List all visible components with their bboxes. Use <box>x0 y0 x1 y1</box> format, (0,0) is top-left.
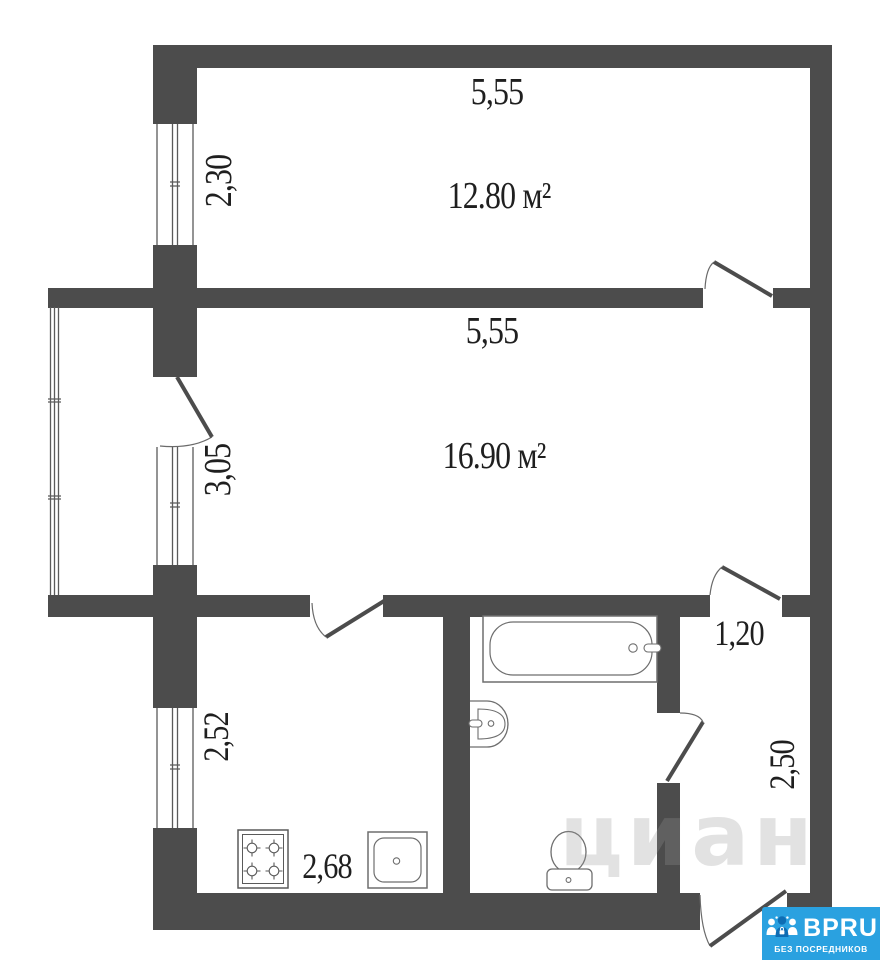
door-middle-room <box>710 567 780 599</box>
dim-top-room-width: 5,55 <box>471 70 524 114</box>
dim-kitchen-width: 2,68 <box>302 845 352 887</box>
bathtub-icon <box>483 616 661 682</box>
dim-top-room-depth: 2,30 <box>197 155 241 208</box>
washbasin-icon <box>469 701 508 747</box>
dim-middle-room-depth: 3,05 <box>196 444 240 497</box>
top-room-area-label: 12.80 м² <box>448 174 551 218</box>
stove-icon <box>238 830 288 888</box>
kitchen-sink-icon <box>368 832 427 888</box>
balcony-glazing-icon <box>48 307 61 595</box>
plan-overlay <box>0 0 880 960</box>
door-bathroom <box>667 713 703 781</box>
logo-brand-text: BPRU <box>803 916 878 941</box>
logo-tagline-text: БЕЗ ПОСРЕДНИКОВ <box>774 944 867 954</box>
dim-hallway-depth: 2,50 <box>761 740 803 790</box>
floor-plan: 5,55 12.80 м² 2,30 5,55 16.90 м² 3,05 2,… <box>0 0 880 960</box>
door-top-room <box>705 262 772 296</box>
people-lock-icon <box>764 914 800 942</box>
window-top-room-icon <box>157 124 193 245</box>
door-balcony <box>160 377 212 447</box>
middle-room-area-label: 16.90 м² <box>443 434 546 478</box>
dim-kitchen-depth: 2,52 <box>195 712 237 762</box>
bpru-logo: BPRU БЕЗ ПОСРЕДНИКОВ <box>762 907 880 960</box>
door-kitchen <box>312 601 384 637</box>
window-kitchen-icon <box>157 708 193 828</box>
window-middle-room-icon <box>157 447 193 565</box>
toilet-icon <box>547 832 592 891</box>
dim-middle-room-width: 5,55 <box>466 309 519 353</box>
dim-hallway-width: 1,20 <box>714 612 764 654</box>
